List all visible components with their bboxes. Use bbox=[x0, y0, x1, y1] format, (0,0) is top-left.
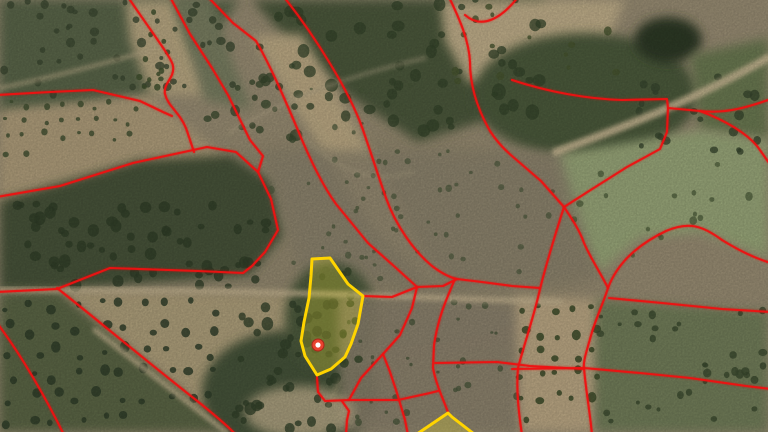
map-viewport[interactable] bbox=[0, 0, 768, 432]
satellite-basemap bbox=[0, 0, 768, 432]
marker-center bbox=[315, 342, 320, 347]
parcel-boundary-line bbox=[512, 368, 584, 369]
image-grain bbox=[0, 0, 768, 432]
parcel-marker bbox=[312, 339, 324, 351]
